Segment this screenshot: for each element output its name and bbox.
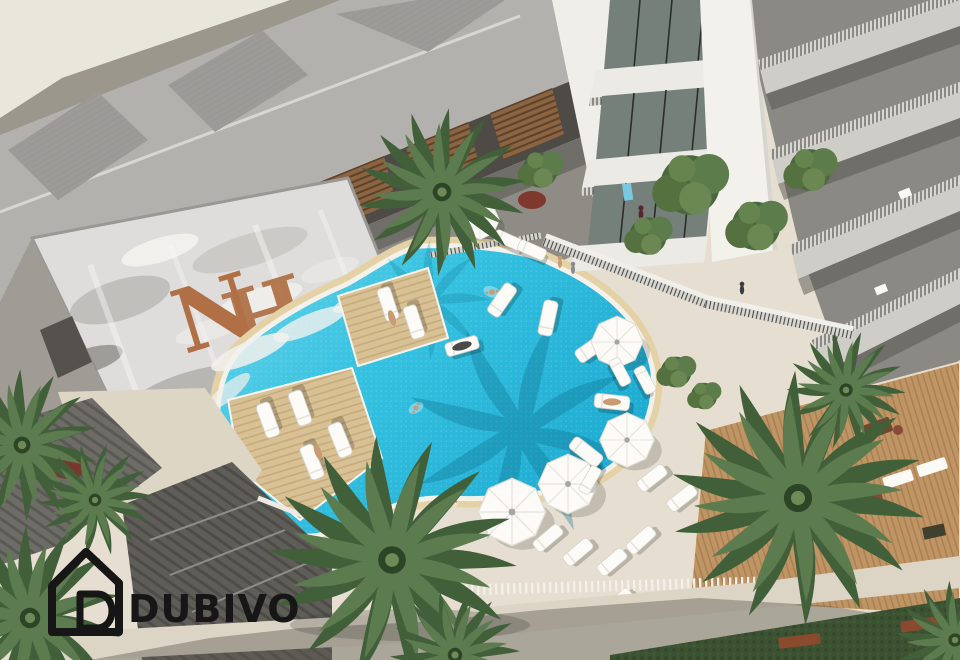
resident-on-terrace — [740, 282, 745, 295]
dubivo-logo-text: DUBIVO — [128, 587, 301, 631]
glass-facade — [596, 86, 722, 160]
sunbather — [603, 398, 621, 405]
person-poolside — [571, 262, 575, 274]
red-shrub — [518, 191, 546, 209]
person-poolside — [558, 256, 562, 268]
deck-chair — [893, 425, 903, 435]
rendering-photo: N H — [0, 0, 960, 660]
